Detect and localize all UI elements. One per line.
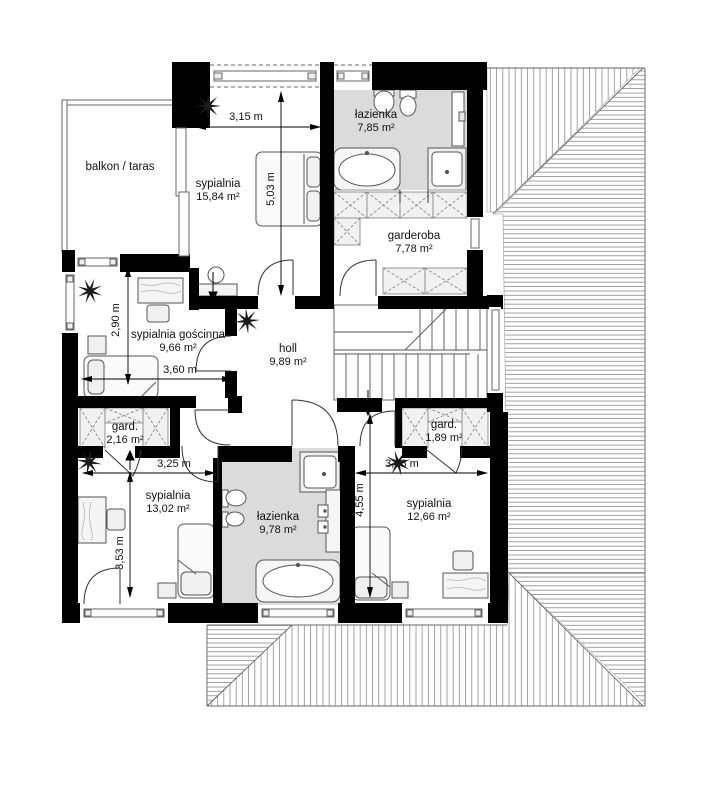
bedroom-3-furniture (352, 527, 488, 600)
room-area: 9,89 m² (269, 356, 306, 370)
room-area: 1,89 m² (425, 432, 462, 446)
door-bedroom-1 (258, 260, 293, 295)
room-area: 7,85 m² (355, 122, 397, 136)
sun-icon (73, 274, 106, 307)
room-label-sypialnia-3: sypialnia 12,66 m² (407, 497, 452, 525)
room-label-sypialnia-goscinna: sypialnia gościnna 9,66 m² (131, 328, 225, 356)
room-name: sypialnia (196, 177, 241, 191)
room-area: 2,16 m² (106, 434, 143, 448)
room-name: gard. (106, 420, 143, 434)
room-area: 15,84 m² (196, 191, 241, 205)
dimension-label: 3,15 m (229, 111, 263, 123)
door-bedroom-2-balcony (84, 568, 120, 604)
window-top-2 (334, 62, 372, 90)
dimension-label: 4,55 m (354, 483, 366, 517)
room-name: sypialnia gościnna (131, 328, 225, 342)
window-stairwell-right (489, 307, 501, 393)
sun-icon (195, 93, 221, 119)
room-name: sypialnia (407, 497, 452, 511)
balcony-railing (62, 100, 176, 252)
room-label-holl: holl 9,89 m² (269, 342, 306, 370)
dimension-label: 3,25 m (157, 458, 191, 470)
dimension-label: 5,03 m (265, 172, 277, 206)
stairs (334, 303, 487, 400)
room-name: łazienka (257, 510, 299, 524)
room-label-lazienka-1: łazienka 7,85 m² (355, 108, 397, 136)
room-area: 12,66 m² (407, 511, 452, 525)
room-label-gard-2: gard. 1,89 m² (425, 418, 462, 446)
dimension-label: 3,28 m (385, 458, 419, 470)
floor-plan-drawing (0, 0, 701, 800)
door-garderoba (340, 260, 376, 296)
room-name: sypialnia (146, 489, 191, 503)
room-label-gard-1: gard. 2,16 m² (106, 420, 143, 448)
room-label-garderoba: garderoba 7,78 m² (388, 229, 440, 257)
room-area: 9,78 m² (257, 524, 299, 538)
window-bottom-3 (402, 606, 486, 620)
door-bedroom-3 (360, 411, 395, 446)
floor-plan-page: balkon / taras sypialnia 15,84 m² łazien… (0, 0, 701, 800)
room-name: balkon / taras (85, 160, 154, 174)
window-garderoba-right (467, 217, 483, 250)
window-guest-left (62, 272, 78, 333)
room-area: 13,02 m² (146, 503, 191, 517)
room-name: łazienka (355, 108, 397, 122)
room-label-sypialnia-1: sypialnia 15,84 m² (196, 177, 241, 205)
room-name: gard. (425, 418, 462, 432)
door-gard-2 (427, 448, 462, 473)
door-corridor (195, 410, 230, 445)
bedroom-1-furniture (192, 152, 322, 296)
window-balcony (75, 252, 120, 272)
dimension-label: 2,90 m (110, 303, 122, 337)
balcony-sliding-door (176, 128, 189, 256)
window-bottom-1 (80, 606, 168, 620)
dimension-label: 3,53 m (114, 536, 126, 570)
room-label-lazienka-2: łazienka 9,78 m² (257, 510, 299, 538)
room-area: 7,78 m² (388, 243, 440, 257)
room-name: holl (269, 342, 306, 356)
room-area: 9,66 m² (131, 342, 225, 356)
room-label-sypialnia-2: sypialnia 13,02 m² (146, 489, 191, 517)
door-bathroom-2 (292, 400, 338, 446)
dimension-label: 3,60 m (163, 364, 197, 376)
window-bottom-2 (258, 606, 338, 620)
room-name: garderoba (388, 229, 440, 243)
window-top-1 (210, 62, 320, 90)
room-label-balkon: balkon / taras (85, 160, 154, 174)
